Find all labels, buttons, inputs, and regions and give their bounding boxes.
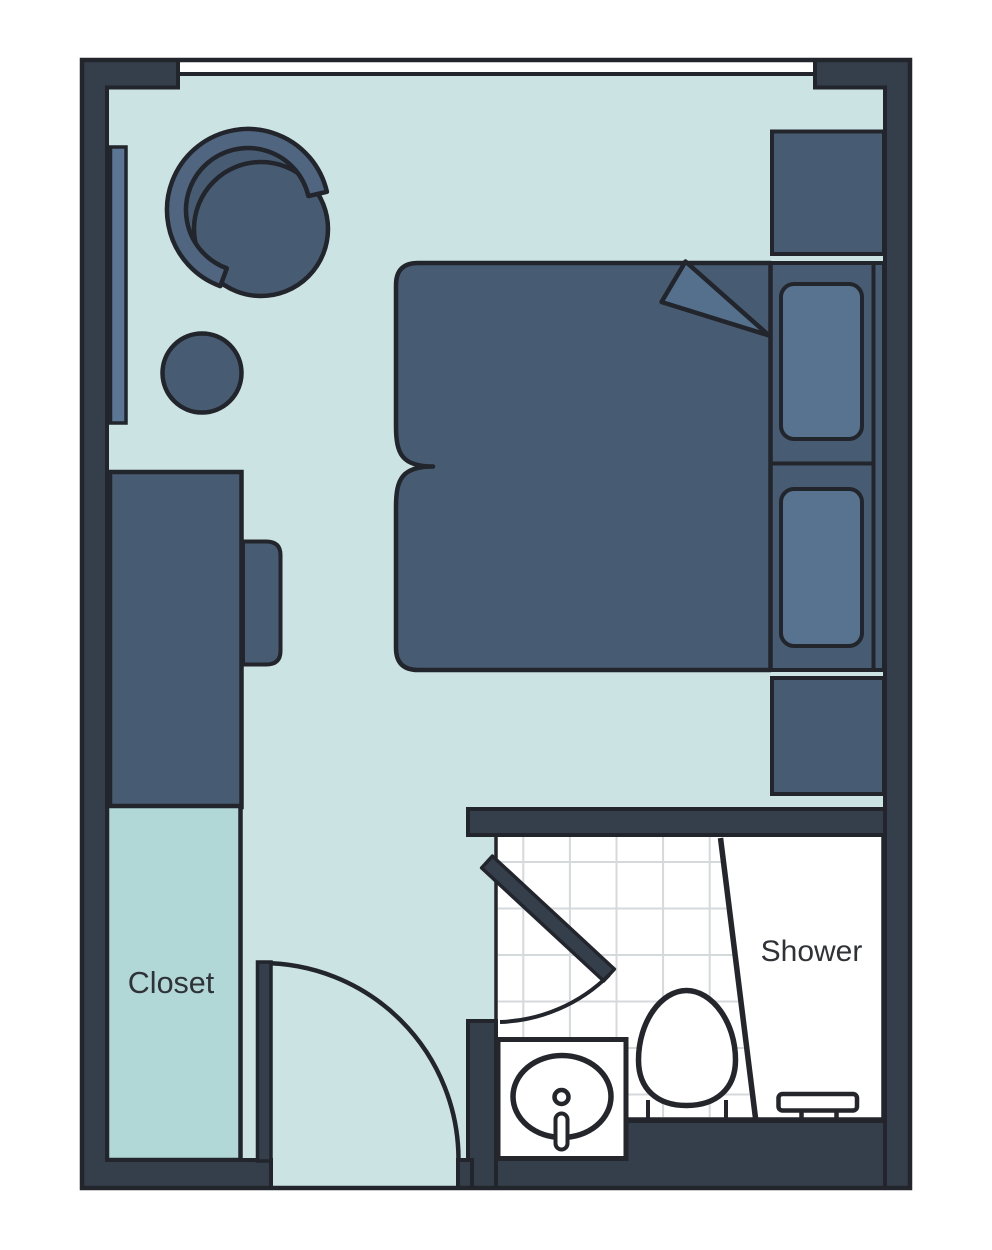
svg-text:Closet: Closet — [128, 966, 215, 1000]
svg-text:Shower: Shower — [761, 935, 863, 968]
